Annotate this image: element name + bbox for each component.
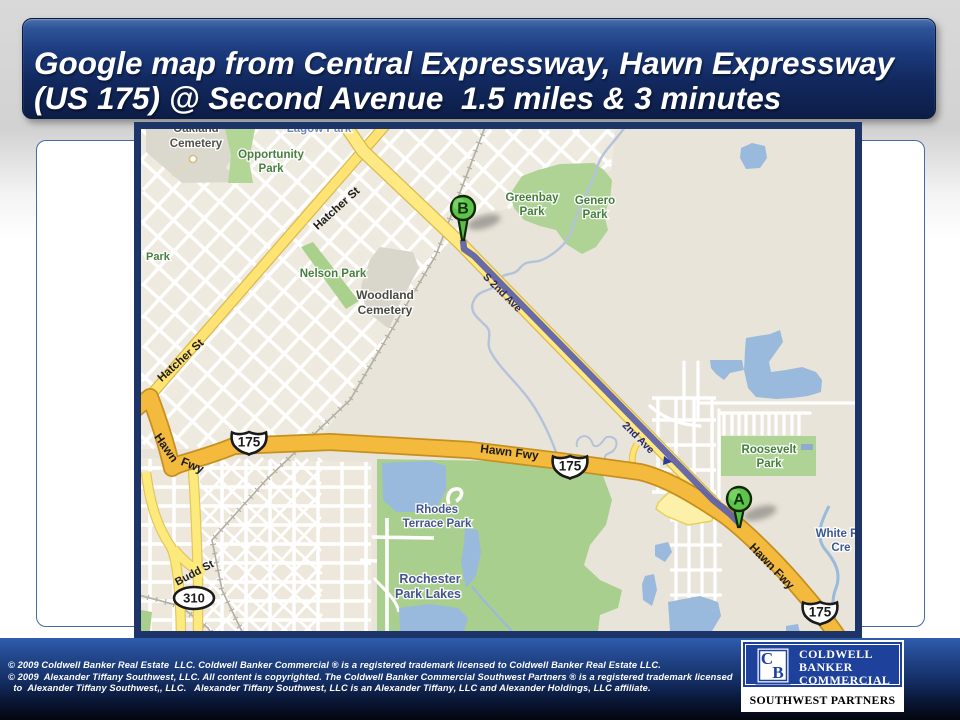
svg-text:Greenbay: Greenbay: [505, 192, 559, 204]
svg-text:Roosevelt: Roosevelt: [742, 444, 797, 456]
svg-text:Park Lakes: Park Lakes: [395, 587, 461, 601]
svg-text:Park: Park: [259, 163, 285, 175]
svg-text:Genero: Genero: [575, 195, 615, 207]
svg-text:Park: Park: [146, 251, 171, 263]
svg-text:Woodland: Woodland: [356, 288, 414, 302]
svg-text:175: 175: [559, 459, 582, 474]
svg-text:B: B: [772, 663, 783, 682]
svg-text:A: A: [733, 492, 745, 509]
svg-text:Park: Park: [757, 458, 783, 470]
svg-text:Park: Park: [583, 209, 609, 221]
svg-text:175: 175: [238, 435, 261, 450]
svg-text:310: 310: [183, 591, 205, 606]
svg-text:Terrace Park: Terrace Park: [403, 518, 472, 530]
svg-text:Cemetery: Cemetery: [170, 138, 223, 150]
svg-text:Opportunity: Opportunity: [238, 149, 304, 161]
svg-text:C: C: [761, 649, 773, 668]
svg-text:Rhodes: Rhodes: [416, 504, 458, 516]
svg-text:Lagow Park: Lagow Park: [287, 129, 352, 135]
svg-text:Park: Park: [520, 206, 546, 218]
svg-text:175: 175: [809, 605, 832, 620]
svg-text:Cemetery: Cemetery: [358, 303, 413, 317]
svg-text:Oakland: Oakland: [173, 129, 218, 135]
svg-text:Nelson Park: Nelson Park: [300, 268, 367, 280]
svg-text:Cre: Cre: [831, 542, 850, 554]
svg-text:White R: White R: [816, 528, 855, 540]
svg-text:B: B: [457, 201, 469, 218]
svg-text:Rochester: Rochester: [399, 572, 460, 586]
